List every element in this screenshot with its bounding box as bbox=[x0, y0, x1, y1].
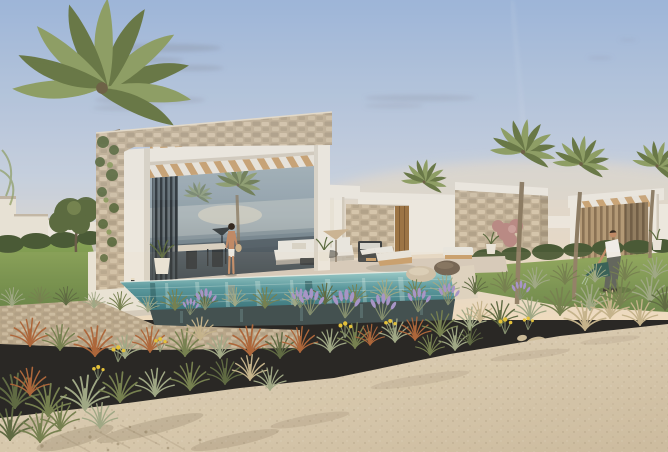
timber-door bbox=[395, 206, 409, 253]
daybed bbox=[443, 247, 473, 259]
villa-render-image bbox=[0, 0, 668, 452]
pebble-pouf-light bbox=[406, 266, 436, 282]
straw-bag bbox=[235, 244, 241, 252]
pebble-pouf-dark bbox=[434, 261, 460, 276]
